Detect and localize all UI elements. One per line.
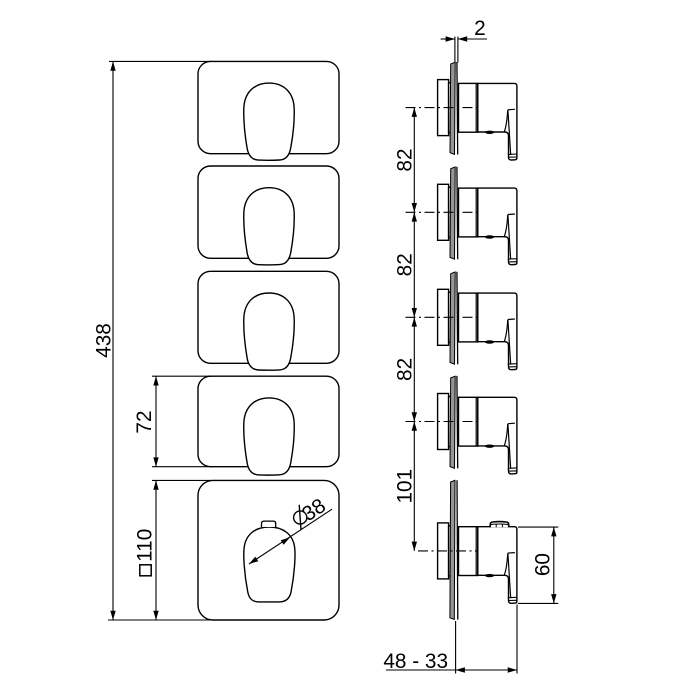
svg-text:48 - 33: 48 - 33 (383, 650, 448, 673)
svg-text:72: 72 (133, 410, 156, 433)
svg-text:82: 82 (394, 358, 417, 381)
svg-text:101: 101 (394, 469, 417, 504)
svg-text:2: 2 (474, 17, 486, 40)
svg-text:82: 82 (394, 253, 417, 276)
svg-text:438: 438 (93, 323, 116, 358)
svg-text:60: 60 (532, 553, 555, 576)
svg-text:82: 82 (394, 148, 417, 171)
svg-text:110: 110 (134, 529, 157, 562)
